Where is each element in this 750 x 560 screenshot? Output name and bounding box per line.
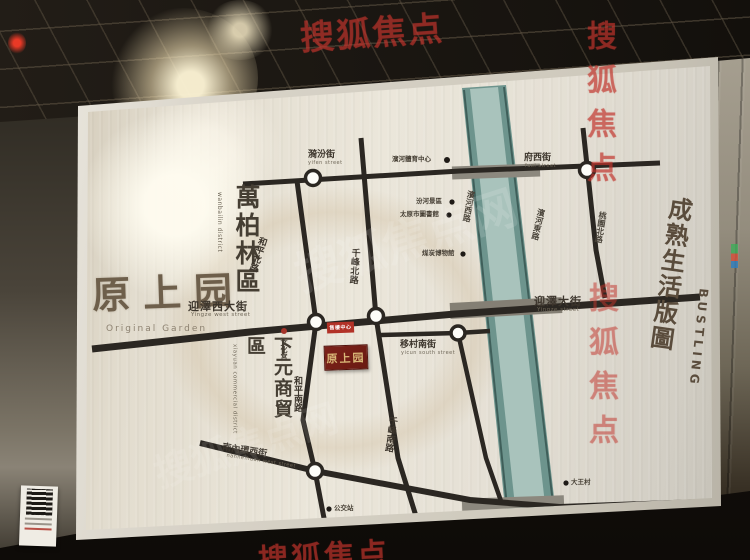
street-yifen: 漪汾街 — [308, 151, 335, 160]
showroom-photo: 原上园 Original Garden wanbailin district 萬… — [0, 0, 750, 560]
landmark-sports-center: 濱河體育中心 — [392, 156, 431, 163]
sales-office-tag: 售樓中心 — [327, 322, 354, 334]
street-fuxi-en: fuxi street — [525, 164, 556, 169]
placard-line — [25, 523, 52, 526]
wall-color-strip — [731, 244, 738, 268]
xiayuan-en: xiayuan commercial district — [231, 344, 237, 424]
landmark-culture-palace: 文化宮 — [280, 339, 287, 373]
landmark-library: 太原市圖書館 — [400, 211, 439, 218]
road-nanneihuan — [200, 443, 700, 507]
project-location-plaque: 原上园 — [324, 344, 369, 371]
landmark-bus-stop: 公交站 — [334, 505, 354, 512]
placard-line-red — [25, 528, 52, 531]
street-yingze-en: Yingze street — [537, 308, 579, 314]
qr-placard — [19, 485, 58, 546]
landmark-coal-museum: 煤炭博物館 — [422, 250, 455, 257]
road-yicun — [380, 331, 490, 335]
light-flare-small — [205, 0, 275, 60]
street-yingze-west-en: Yingze west street — [191, 313, 250, 319]
qr-code — [26, 489, 53, 516]
street-yifen-en: yifen street — [308, 161, 343, 166]
street-yicun: 移村南街 — [400, 341, 436, 350]
wanbailin-en: wanbailin district — [216, 192, 222, 284]
landmark-dawang-village: 大王村 — [571, 479, 591, 486]
street-yicun-en: yicun south street — [401, 351, 455, 356]
project-title-en: Original Garden — [106, 324, 207, 334]
street-yingze: 迎澤大街 — [534, 296, 582, 307]
street-fuxi: 府西街 — [524, 154, 551, 163]
street-heping-s: 和平南路 — [292, 376, 301, 428]
red-landmark-dot — [281, 328, 287, 334]
red-lamp-glow — [8, 32, 26, 54]
landmark-fenhe-scenic: 汾河景區 — [416, 198, 442, 205]
placard-line — [25, 518, 52, 521]
